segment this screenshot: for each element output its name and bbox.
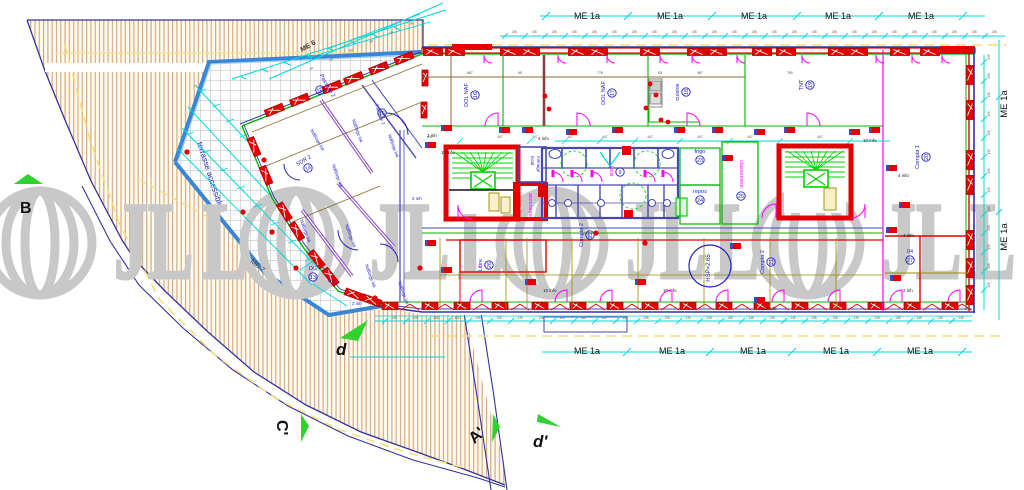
svg-text:135: 135 (831, 30, 837, 34)
svg-text:135: 135 (911, 30, 917, 34)
svg-text:135: 135 (916, 316, 922, 320)
svg-text:Compta 2: Compta 2 (579, 223, 585, 247)
svg-text:447: 447 (817, 135, 823, 139)
svg-text:local: local (608, 166, 614, 176)
svg-text:ME 1a: ME 1a (740, 346, 766, 356)
svg-text:135: 135 (931, 30, 937, 34)
svg-text:135: 135 (496, 316, 502, 320)
svg-text:135: 135 (987, 73, 991, 79)
svg-text:ME 1a: ME 1a (657, 11, 683, 21)
svg-text:2 inh: 2 inh (412, 196, 422, 201)
svg-text:135: 135 (748, 316, 754, 320)
svg-text:790: 790 (787, 71, 793, 75)
svg-text:135: 135 (571, 30, 577, 34)
svg-text:26: 26 (487, 262, 493, 268)
svg-text:C': C' (273, 420, 290, 435)
svg-text:2 inh: 2 inh (903, 288, 913, 293)
svg-text:19: 19 (808, 82, 814, 88)
svg-text:4 info: 4 info (898, 173, 910, 178)
svg-text:B: B (20, 200, 32, 217)
svg-text:HSP=2.65: HSP=2.65 (706, 254, 712, 282)
svg-text:10 info: 10 info (863, 138, 877, 143)
svg-text:135: 135 (987, 54, 991, 60)
svg-text:135: 135 (631, 30, 637, 34)
svg-text:ME 1a: ME 1a (999, 223, 1010, 251)
svg-text:DG: DG (328, 278, 335, 283)
svg-text:135: 135 (987, 225, 991, 231)
svg-text:135: 135 (664, 316, 670, 320)
svg-text:16: 16 (473, 92, 479, 98)
svg-text:135: 135 (987, 92, 991, 98)
svg-text:135: 135 (391, 316, 397, 320)
svg-text:135: 135 (591, 30, 597, 34)
svg-text:ME 1a: ME 1a (741, 11, 767, 21)
svg-text:cuisine: cuisine (675, 83, 681, 100)
svg-text:Libre: Libre (478, 259, 484, 271)
svg-text:135: 135 (531, 30, 537, 34)
svg-text:21: 21 (769, 259, 775, 265)
svg-text:135: 135 (691, 30, 697, 34)
svg-text:135: 135 (412, 316, 418, 320)
svg-text:135: 135 (987, 111, 991, 117)
svg-text:135: 135 (871, 30, 877, 34)
svg-text:447: 447 (747, 135, 753, 139)
svg-text:3 inh: 3 inh (352, 301, 362, 306)
svg-text:20: 20 (924, 154, 930, 160)
svg-text:135: 135 (987, 187, 991, 193)
svg-text:135: 135 (651, 30, 657, 34)
svg-text:L: L (916, 179, 961, 302)
svg-text:135: 135 (790, 316, 796, 320)
svg-text:135: 135 (685, 316, 691, 320)
svg-text:135: 135 (611, 30, 617, 34)
svg-text:TNT: TNT (799, 79, 805, 90)
svg-text:135: 135 (538, 316, 544, 320)
svg-text:135: 135 (958, 316, 964, 320)
svg-text:135: 135 (832, 316, 838, 320)
svg-text:135: 135 (874, 316, 880, 320)
svg-text:24: 24 (697, 198, 703, 204)
svg-text:447: 447 (497, 135, 503, 139)
svg-text:778: 778 (597, 71, 603, 75)
svg-text:22: 22 (588, 232, 594, 238)
svg-text:135: 135 (987, 244, 991, 250)
svg-text:ME 1a: ME 1a (574, 346, 600, 356)
svg-text:25: 25 (738, 194, 744, 200)
svg-text:135: 135 (731, 30, 737, 34)
svg-text:J: J (114, 179, 148, 302)
svg-text:15: 15 (379, 111, 385, 117)
svg-text:135: 135 (811, 30, 817, 34)
svg-text:10 info: 10 info (441, 150, 455, 155)
svg-text:13: 13 (310, 275, 316, 281)
svg-text:135: 135 (706, 316, 712, 320)
svg-text:ME 1a: ME 1a (574, 11, 600, 21)
svg-text:135: 135 (951, 30, 957, 34)
svg-text:Compta 1: Compta 1 (915, 145, 921, 169)
svg-text:135: 135 (727, 316, 733, 320)
svg-text:63: 63 (658, 71, 662, 75)
svg-text:frigo: frigo (695, 149, 706, 155)
svg-text:4 info: 4 info (903, 233, 915, 238)
svg-text:J: J (882, 179, 916, 302)
svg-text:4 info: 4 info (538, 136, 550, 141)
svg-text:135: 135 (551, 30, 557, 34)
svg-text:135: 135 (711, 30, 717, 34)
svg-text:447: 447 (647, 135, 653, 139)
svg-text:135: 135 (987, 282, 991, 288)
svg-text:447: 447 (602, 135, 608, 139)
svg-text:135: 135 (671, 30, 677, 34)
svg-text:local: local (530, 156, 535, 165)
svg-text:ME 1a: ME 1a (999, 90, 1010, 118)
svg-text:467: 467 (697, 71, 703, 75)
svg-text:Compta 2: Compta 2 (760, 250, 766, 274)
svg-text:d: d (336, 340, 347, 359)
svg-text:135: 135 (454, 316, 460, 320)
svg-text:135: 135 (987, 130, 991, 136)
svg-text:135: 135 (643, 316, 649, 320)
svg-text:135: 135 (511, 30, 517, 34)
svg-text:23: 23 (697, 158, 703, 164)
svg-text:classement: classement (738, 160, 744, 188)
svg-text:135: 135 (987, 149, 991, 155)
svg-text:10 info: 10 info (543, 288, 557, 293)
svg-text:135: 135 (971, 30, 977, 34)
svg-text:135: 135 (751, 30, 757, 34)
svg-text:ME 1a: ME 1a (659, 346, 685, 356)
svg-text:DOL NAF: DOL NAF (601, 81, 607, 105)
svg-text:135: 135 (853, 316, 859, 320)
svg-text:DOL NAF: DOL NAF (464, 83, 470, 107)
svg-text:ME 1a: ME 1a (825, 11, 851, 21)
svg-text:L: L (148, 179, 193, 302)
svg-text:9: 9 (618, 170, 621, 176)
svg-text:135: 135 (433, 316, 439, 320)
svg-text:18: 18 (684, 89, 690, 95)
svg-text:447: 447 (697, 135, 703, 139)
svg-text:2 inh: 2 inh (427, 133, 437, 138)
svg-text:135: 135 (811, 316, 817, 320)
svg-text:135: 135 (987, 206, 991, 212)
svg-text:ascenseur: ascenseur (527, 193, 533, 219)
svg-text:135: 135 (987, 263, 991, 269)
svg-text:447: 447 (567, 135, 573, 139)
svg-text:ménage: ménage (536, 156, 541, 173)
svg-text:DG: DG (309, 266, 317, 272)
svg-text:ME 1a: ME 1a (907, 346, 933, 356)
svg-text:135: 135 (769, 316, 775, 320)
svg-text:135: 135 (891, 30, 897, 34)
svg-text:135: 135 (517, 316, 523, 320)
svg-text:27: 27 (907, 258, 913, 264)
svg-text:ME 1a: ME 1a (823, 346, 849, 356)
svg-text:135: 135 (791, 30, 797, 34)
svg-text:135: 135 (895, 316, 901, 320)
svg-text:65: 65 (518, 71, 522, 75)
svg-text:135: 135 (991, 30, 997, 34)
svg-text:667: 667 (467, 71, 473, 75)
svg-text:135: 135 (851, 30, 857, 34)
svg-text:135: 135 (987, 168, 991, 174)
svg-text:135: 135 (937, 316, 943, 320)
svg-text:10 info: 10 info (763, 306, 777, 311)
svg-text:17: 17 (610, 90, 616, 96)
svg-text:d': d' (533, 432, 548, 451)
svg-text:repos: repos (693, 189, 707, 195)
svg-text:135: 135 (771, 30, 777, 34)
svg-text:ME 1a: ME 1a (908, 11, 934, 21)
svg-text:04: 04 (907, 249, 913, 255)
svg-text:135: 135 (475, 316, 481, 320)
